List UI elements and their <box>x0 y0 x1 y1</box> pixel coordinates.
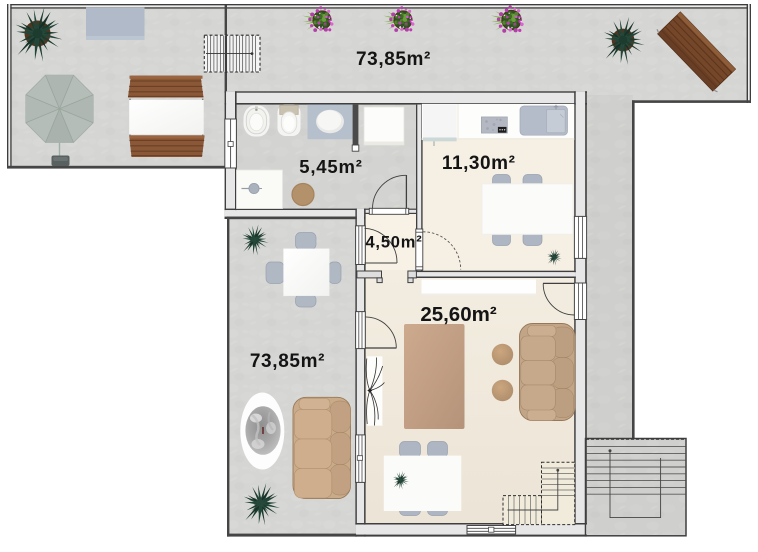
svg-text:73,85m²: 73,85m² <box>356 49 431 70</box>
svg-text:5,45m²: 5,45m² <box>299 156 362 177</box>
svg-text:25,60m²: 25,60m² <box>420 303 497 326</box>
svg-text:73,85m²: 73,85m² <box>250 351 325 372</box>
svg-text:4,50m²: 4,50m² <box>365 234 422 252</box>
svg-text:11,30m²: 11,30m² <box>442 153 516 174</box>
